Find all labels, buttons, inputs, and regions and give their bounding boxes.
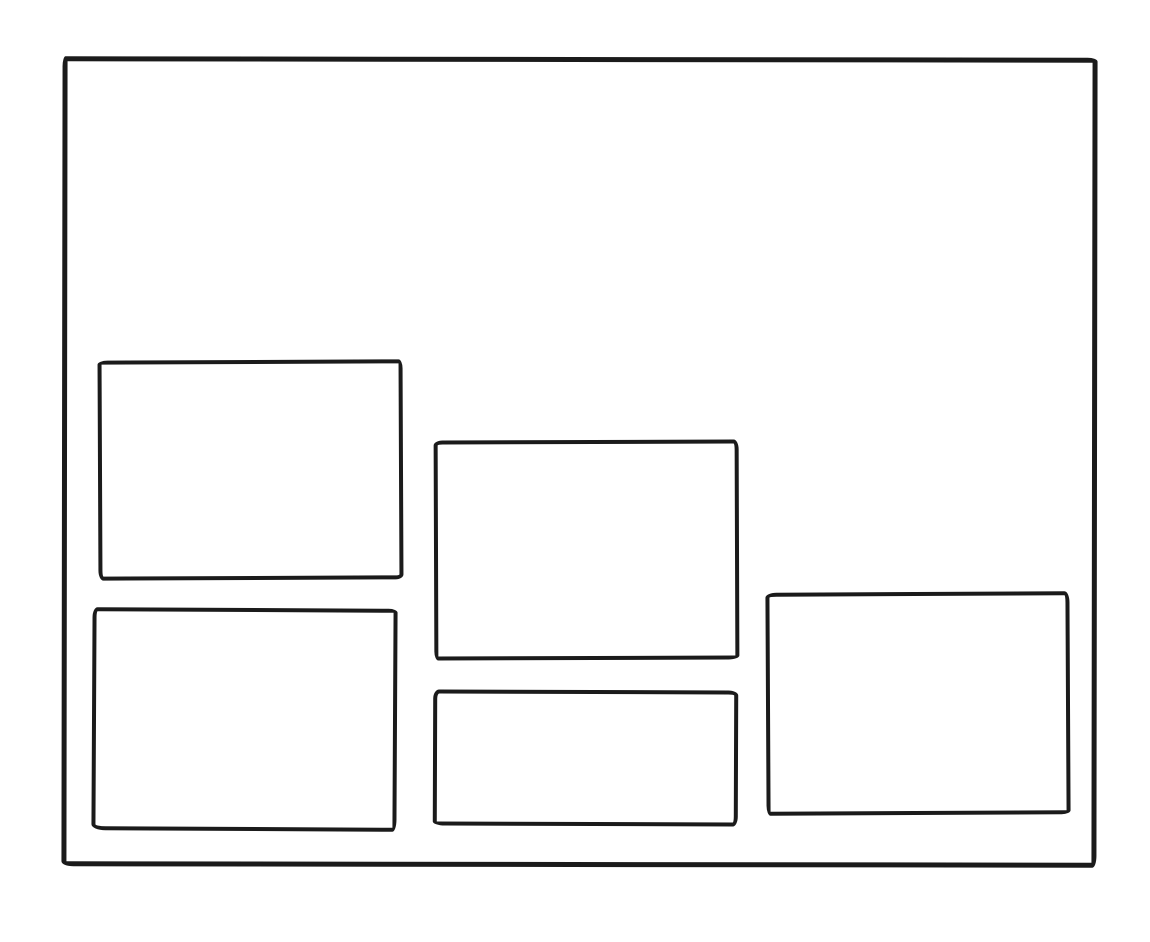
panel-right <box>765 591 1070 816</box>
panel-middle-bottom <box>433 689 738 826</box>
panel-bottom-left <box>91 607 397 832</box>
sketch-canvas <box>0 0 1150 942</box>
panel-middle-top <box>434 439 740 660</box>
panel-top-left <box>98 359 404 580</box>
